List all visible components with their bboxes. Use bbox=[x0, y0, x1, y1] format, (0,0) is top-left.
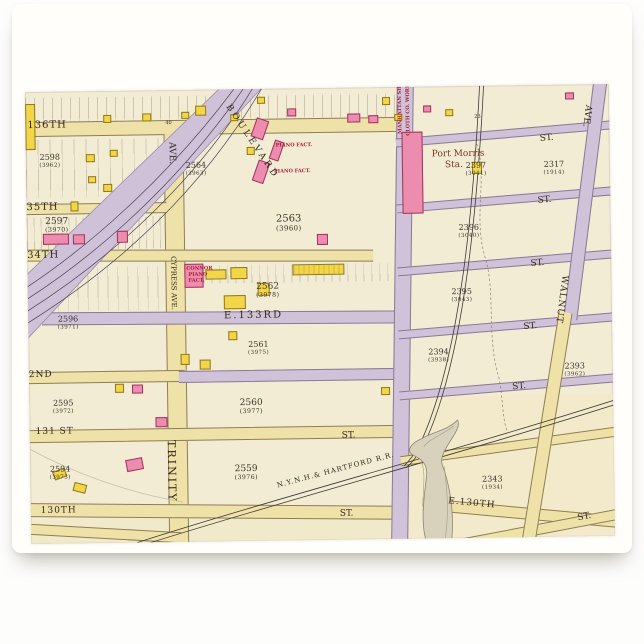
block-number-old: (3973) bbox=[36, 474, 84, 481]
building bbox=[72, 482, 87, 494]
building bbox=[257, 97, 265, 104]
building bbox=[317, 234, 328, 245]
street-label: 23 bbox=[474, 115, 480, 120]
building bbox=[292, 264, 344, 276]
street-band bbox=[179, 368, 401, 383]
street-band bbox=[27, 250, 373, 262]
block-number-main: 2595 bbox=[53, 398, 73, 407]
block-number-main: 2560 bbox=[240, 398, 263, 408]
factory-label: FACT. bbox=[188, 279, 204, 284]
building bbox=[181, 354, 190, 365]
street-label: ST. bbox=[512, 382, 526, 392]
block-number-main: 2395 bbox=[451, 287, 471, 296]
street-label: ST. bbox=[540, 134, 554, 144]
block-number: 2396(3040) bbox=[445, 224, 493, 239]
building bbox=[230, 267, 247, 279]
street-band bbox=[398, 312, 614, 339]
block-number: 2563(3960) bbox=[265, 214, 313, 233]
block-number-old: (1934) bbox=[468, 484, 516, 491]
street-label: AVE. bbox=[580, 104, 592, 127]
street-label: N.Y.N.H.& HARTFORD R.R. bbox=[276, 452, 395, 490]
block-number-old: (3978) bbox=[244, 292, 292, 299]
building bbox=[117, 231, 128, 243]
factory-label: PIANO FACT. bbox=[276, 143, 313, 149]
block-number: 2597(3970) bbox=[33, 217, 81, 234]
building bbox=[200, 360, 211, 370]
building bbox=[445, 109, 453, 116]
building bbox=[155, 417, 167, 427]
building bbox=[181, 112, 189, 119]
factory-label: PIANO FACT. bbox=[274, 169, 311, 175]
block-number: 2393(3962) bbox=[551, 362, 599, 377]
block-number-old: (3962) bbox=[26, 162, 74, 169]
block-number-main: 2563 bbox=[276, 213, 302, 224]
block-number-main: 2343 bbox=[482, 474, 502, 483]
block-number: 2598(3962) bbox=[26, 153, 74, 168]
street-label: CYPRESS AVE. bbox=[169, 256, 177, 310]
parcel-lines bbox=[27, 266, 164, 312]
building bbox=[132, 384, 143, 393]
block-number-old: (3960) bbox=[265, 225, 313, 233]
building bbox=[228, 331, 237, 340]
building bbox=[287, 108, 296, 116]
block-number-old: (3971) bbox=[44, 324, 92, 331]
building bbox=[195, 106, 206, 116]
block-number: 2397(3041) bbox=[452, 161, 500, 176]
block-number-main: 2396 bbox=[459, 223, 479, 232]
street-label: ST. bbox=[537, 196, 551, 206]
block-number-old: (3972) bbox=[39, 408, 87, 415]
block-number-main: 2394 bbox=[428, 347, 448, 356]
building bbox=[423, 105, 431, 112]
building bbox=[368, 115, 378, 123]
block-number-old: (3970) bbox=[33, 227, 81, 234]
greeting-card: 136TH4035TH34THE.133RD2ND131 STST.130THS… bbox=[12, 4, 632, 553]
building bbox=[382, 97, 390, 105]
building bbox=[142, 113, 151, 121]
building bbox=[73, 234, 85, 244]
building bbox=[224, 295, 246, 309]
building bbox=[86, 154, 95, 162]
atlas-map: 136TH4035TH34THE.133RD2ND131 STST.130THS… bbox=[25, 84, 615, 544]
building bbox=[565, 92, 574, 99]
block-number-main: 2397 bbox=[466, 161, 486, 170]
building bbox=[103, 184, 112, 192]
block-number: 2559(3976) bbox=[222, 465, 270, 482]
street-label: 130TH bbox=[41, 506, 77, 516]
street-label: E.133RD bbox=[224, 311, 283, 322]
block-number-old: (3977) bbox=[227, 408, 275, 415]
block-number: 2317(1914) bbox=[530, 160, 578, 175]
block-number-main: 2317 bbox=[544, 160, 564, 169]
street-label: 35TH bbox=[26, 203, 58, 213]
block-number: 2594(3973) bbox=[36, 465, 84, 480]
block-number-old: (3963) bbox=[172, 170, 220, 177]
block-number-main: 2393 bbox=[565, 361, 585, 370]
block-number-main: 2561 bbox=[248, 340, 268, 349]
block-number: 2343(1934) bbox=[468, 475, 516, 490]
block-number: 2564(3963) bbox=[172, 161, 220, 176]
building bbox=[381, 387, 390, 395]
block-number: 2596(3971) bbox=[44, 315, 92, 330]
street-label: 34TH bbox=[27, 251, 59, 261]
block-number-main: 2597 bbox=[45, 217, 68, 227]
street-label: 40 bbox=[165, 121, 171, 126]
block-number: 2562(3978) bbox=[244, 282, 292, 299]
building bbox=[43, 233, 69, 244]
block-number: 2561(3975) bbox=[234, 341, 282, 356]
factory-label: MANHATTAN SHADE bbox=[398, 84, 404, 134]
street-label: 2ND bbox=[29, 371, 53, 380]
building bbox=[103, 115, 111, 123]
street-label: TRINITY bbox=[166, 440, 178, 503]
building bbox=[125, 457, 144, 472]
block-number-main: 2559 bbox=[235, 464, 258, 474]
block-number: 2560(3977) bbox=[227, 399, 275, 416]
block-number-old: (3975) bbox=[234, 349, 282, 356]
block-number-old: (3976) bbox=[222, 474, 270, 481]
block-number-main: 2564 bbox=[186, 161, 206, 170]
block-number-old: (3043) bbox=[438, 296, 486, 303]
street-label: 131 ST bbox=[36, 427, 74, 437]
block-number-old: (1914) bbox=[530, 169, 578, 176]
block-number: 2394(3938) bbox=[414, 348, 462, 363]
street-label: AVE. bbox=[167, 142, 176, 164]
block-number-main: 2562 bbox=[256, 282, 279, 292]
factory-label: CLOTH CO. WORKS bbox=[406, 84, 412, 136]
block-number: 2595(3972) bbox=[39, 399, 87, 414]
map-layers: 136TH4035TH34THE.133RD2ND131 STST.130THS… bbox=[25, 84, 609, 92]
block-number-main: 2596 bbox=[58, 314, 78, 323]
block-number-old: (3962) bbox=[551, 371, 599, 378]
street-label: ST. bbox=[342, 432, 356, 441]
building bbox=[70, 201, 78, 211]
street-label: 136TH bbox=[27, 121, 67, 132]
block-number-old: (3041) bbox=[452, 170, 500, 177]
street-label: ST. bbox=[340, 510, 354, 519]
building bbox=[401, 132, 423, 214]
block-number-main: 2598 bbox=[40, 153, 60, 162]
building bbox=[115, 384, 124, 393]
street-label: ST. bbox=[523, 322, 537, 332]
building bbox=[347, 113, 360, 122]
building bbox=[88, 176, 96, 183]
station-label: Port Morris bbox=[432, 150, 485, 160]
block-number-old: (3938) bbox=[415, 357, 463, 364]
street-band bbox=[42, 310, 398, 325]
block-number-old: (3040) bbox=[445, 232, 493, 239]
block-number-main: 2594 bbox=[50, 465, 70, 474]
street-band bbox=[396, 120, 612, 147]
block-number: 2395(3043) bbox=[438, 288, 486, 303]
street-label: ST. bbox=[530, 259, 544, 269]
building bbox=[110, 150, 118, 157]
